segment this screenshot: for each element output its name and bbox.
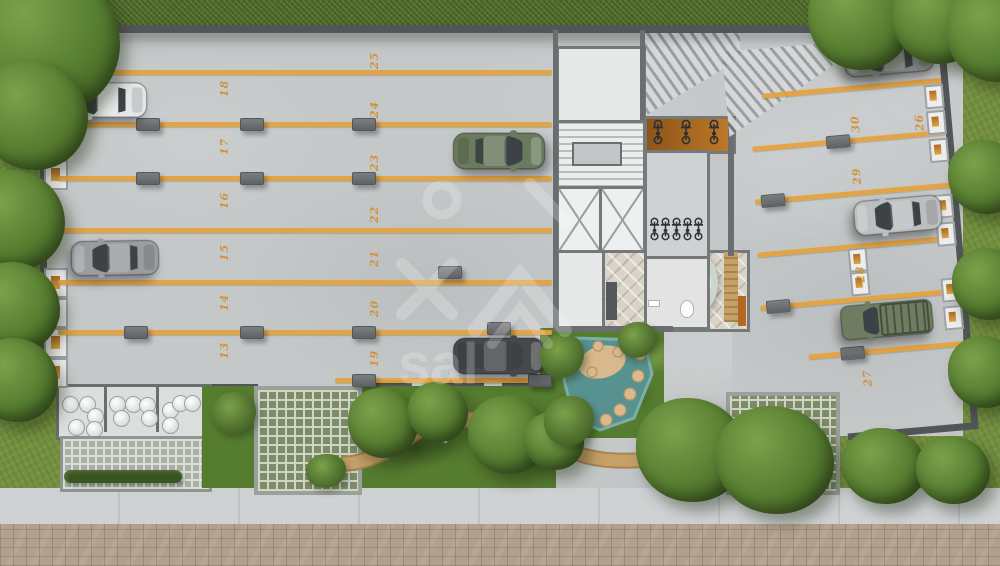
wheel-stop — [352, 326, 376, 339]
wheel-stop — [136, 172, 160, 185]
bike-rack-icon — [671, 210, 682, 248]
site-plan-render: 18 17 16 15 14 13 25 24 23 22 21 20 19 — [0, 0, 1000, 566]
storage-room — [556, 46, 646, 124]
stall-number: 24 — [368, 101, 381, 118]
angled-parking-group: 30 29 28 27 26 — [721, 25, 986, 453]
stall-number: 13 — [218, 342, 231, 359]
water-tank — [141, 410, 158, 427]
wood-deck-strip — [724, 252, 738, 322]
stall-line — [58, 122, 552, 127]
bathroom — [644, 256, 710, 330]
room-divider-2 — [156, 386, 159, 432]
tree — [916, 436, 990, 504]
wheel-stop — [826, 134, 851, 149]
hedge-row — [64, 470, 182, 483]
car-silver-sedan — [851, 190, 944, 240]
car-green-pickup — [838, 296, 935, 344]
stall-number: 30 — [848, 115, 862, 133]
hanging-bike-icon — [652, 119, 664, 145]
hanging-bike-icon — [708, 119, 720, 145]
watermark-logo: sal — [380, 168, 610, 398]
watermark-text: sal — [398, 332, 479, 397]
bike-rack-icon — [649, 210, 660, 248]
stall-line — [58, 70, 552, 75]
stall-number: 29 — [850, 167, 864, 185]
bike-rack-icon — [693, 210, 704, 248]
hanging-bike-icon — [680, 119, 692, 145]
car-gray-suv — [70, 235, 161, 281]
core-wall-mid — [640, 30, 645, 120]
storage-locker — [926, 110, 947, 136]
stall-number: 15 — [218, 244, 231, 261]
wheel-stop — [240, 172, 264, 185]
wheel-stop — [352, 118, 376, 131]
tree — [842, 428, 926, 504]
stall-number: 18 — [218, 80, 231, 97]
water-tank — [184, 395, 201, 412]
storage-locker — [943, 305, 964, 331]
sink — [648, 300, 660, 307]
bike-rack-icon — [660, 210, 671, 248]
sidewalk — [0, 488, 1000, 527]
wheel-stop — [352, 172, 376, 185]
storage-locker — [924, 84, 945, 110]
ventilation-grating — [60, 436, 212, 492]
stair-landing-platform — [572, 142, 622, 166]
stall-number: 25 — [368, 52, 381, 69]
tree — [348, 388, 418, 458]
stall-number: 27 — [860, 369, 874, 387]
stall-number: 28 — [853, 265, 867, 283]
wheel-stop — [840, 346, 865, 361]
room-divider-1 — [104, 386, 107, 432]
toilet — [680, 300, 694, 318]
water-tank — [62, 396, 79, 413]
wheel-stop — [761, 193, 786, 208]
stall-number: 26 — [912, 113, 926, 131]
water-tank — [68, 419, 85, 436]
wheel-stop — [124, 326, 148, 339]
bike-rack-icon — [682, 210, 693, 248]
wheel-stop — [240, 118, 264, 131]
stall-number: 16 — [218, 192, 231, 209]
water-tank — [113, 410, 130, 427]
stall-number: 14 — [218, 294, 231, 311]
wheel-stop — [240, 326, 264, 339]
wheel-stop — [766, 299, 791, 314]
cobblestone-street — [0, 524, 1000, 566]
stall-line — [809, 341, 965, 360]
water-tank — [162, 417, 179, 434]
stall-number: 17 — [218, 138, 231, 155]
wheel-stop — [352, 374, 376, 387]
storage-locker — [928, 138, 949, 164]
